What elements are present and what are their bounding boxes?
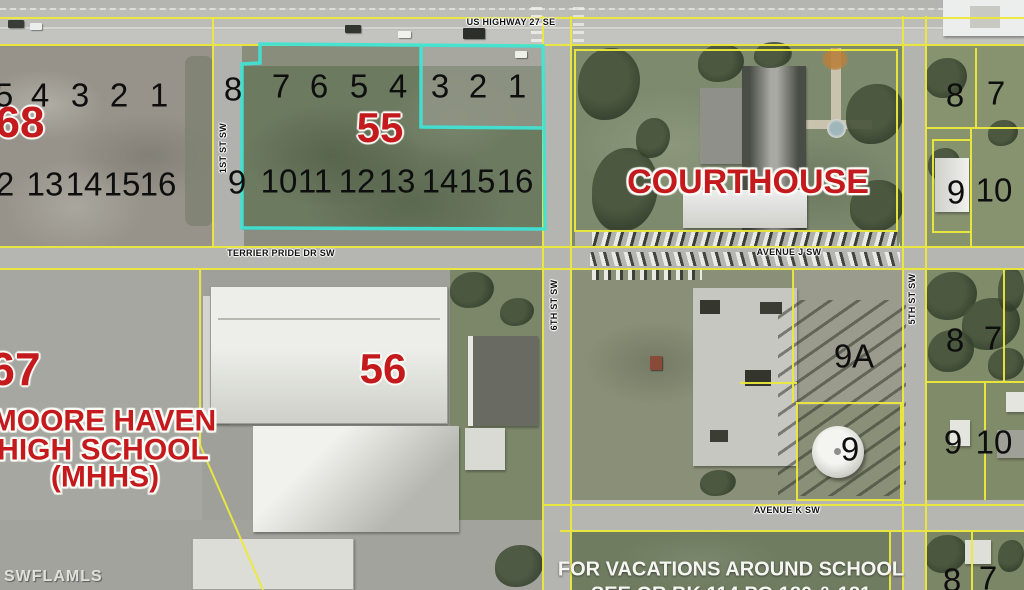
highway-lane-dashes — [0, 8, 1024, 10]
lot-number: 14 — [422, 165, 459, 198]
courthouse-label: COURTHOUSE — [627, 165, 869, 201]
parcel-55-notch-ground — [420, 46, 545, 128]
parcel-55-top-band — [242, 44, 545, 66]
antenna-structure — [650, 356, 662, 370]
tree — [988, 348, 1024, 380]
tree — [450, 272, 494, 308]
shed — [950, 420, 970, 446]
aerial-parcel-map: US HIGHWAY 27 SE TERRIER PRIDE DR SW AVE… — [0, 0, 1024, 590]
vehicle — [30, 23, 42, 30]
lot-number: 13 — [27, 168, 64, 201]
roof-patch — [700, 300, 720, 314]
lot-number: 5 — [350, 70, 368, 103]
parcel-number-label: 68 — [0, 101, 44, 145]
lot-number: 2 — [110, 79, 128, 112]
school-low-wing — [253, 426, 459, 532]
street-label-avenue-k: AVENUE K SW — [754, 505, 820, 515]
street-label-fifth-st: 5TH ST SW — [907, 274, 917, 325]
parked-cars-row — [592, 268, 702, 280]
house — [935, 158, 969, 212]
water-tower-cap — [834, 448, 841, 455]
house — [965, 540, 991, 564]
vacation-note-line2: SEE OR BK 114 PG 180 & 181 — [591, 584, 871, 590]
school-small-building — [465, 428, 505, 470]
block-68-lot — [0, 44, 213, 247]
street-label-terrier-pride: TERRIER PRIDE DR SW — [227, 248, 335, 258]
tree — [998, 540, 1024, 572]
vacation-note-line1: FOR VACATIONS AROUND SCHOOL — [558, 559, 904, 582]
lot-number: 15 — [459, 165, 496, 198]
lot-number: 8 — [224, 73, 242, 106]
lot-number: 16 — [140, 168, 177, 201]
parked-cars-row — [60, 496, 198, 511]
tree — [925, 58, 967, 98]
school-dark-building — [468, 336, 538, 426]
lot-number: 7 — [979, 562, 997, 590]
school-south-building — [192, 538, 354, 590]
school-main-building — [210, 286, 448, 424]
lot-number: 15 — [104, 168, 141, 201]
block-68-green-edge — [185, 56, 213, 226]
street-label-first-st: 1ST ST SW — [218, 123, 228, 173]
lot-number: 3 — [71, 79, 89, 112]
roof-patch — [745, 370, 771, 386]
crosswalk — [573, 2, 584, 42]
school-roof-ridge — [218, 318, 440, 320]
vehicle — [463, 28, 485, 39]
lot-number: 14 — [66, 168, 103, 201]
roof-patch — [710, 430, 728, 442]
parcel-number-label: 55 — [357, 107, 404, 149]
lot-number: 7 — [987, 77, 1005, 110]
lot-number: 9 — [228, 166, 246, 199]
lot-number: 1 — [508, 70, 526, 103]
vehicle — [398, 31, 411, 38]
tree — [500, 298, 534, 326]
lot-number: 3 — [431, 70, 449, 103]
shed — [1006, 392, 1024, 412]
tree — [998, 268, 1024, 312]
parked-cars-row — [2, 378, 150, 393]
lot-number: 16 — [497, 165, 534, 198]
vehicle — [8, 20, 24, 28]
tree — [988, 120, 1018, 146]
street-label-avenue-j: AVENUE J SW — [757, 247, 822, 257]
tree — [846, 84, 904, 144]
tree — [636, 118, 670, 158]
lot-number: 6 — [310, 70, 328, 103]
parked-cars-row — [590, 252, 900, 266]
parcel-55-grass — [242, 44, 545, 230]
lot-number: 2 — [469, 70, 487, 103]
vehicle — [515, 51, 527, 58]
vehicle — [345, 25, 361, 33]
tree — [754, 42, 792, 68]
lot-number: 4 — [389, 70, 407, 103]
tree — [928, 330, 974, 372]
lot-number: 2 — [0, 168, 14, 201]
parked-cars-row — [2, 338, 196, 353]
lot-number: 10 — [976, 174, 1013, 207]
highway-center-line — [0, 27, 1024, 29]
street-label-sixth-st: 6TH ST SW — [549, 280, 559, 331]
school-label-line3: (MHHS) — [51, 461, 159, 493]
street-label-us-highway-27: US HIGHWAY 27 SE — [467, 17, 556, 27]
house — [997, 430, 1024, 458]
lot-number: 5 — [0, 79, 13, 112]
mls-watermark: SWFLAMLS — [4, 568, 103, 586]
parked-cars-row — [592, 232, 900, 246]
tree — [700, 470, 736, 496]
tree — [495, 545, 543, 587]
lot-number: 13 — [379, 165, 416, 198]
courthouse-west-wing — [700, 88, 744, 164]
lot-number: 1 — [150, 79, 168, 112]
autumn-tree — [822, 48, 848, 70]
fountain — [827, 119, 846, 138]
parked-cars-row — [2, 296, 196, 311]
lot-number: 7 — [272, 70, 290, 103]
tree — [578, 48, 640, 120]
ne-corner-building-unit — [970, 6, 1000, 28]
lot-number: 11 — [298, 165, 332, 198]
lot-number: 10 — [261, 165, 298, 198]
lot-number: 12 — [339, 165, 376, 198]
lot-number: 4 — [31, 79, 49, 112]
tree — [698, 44, 744, 82]
school-label-line1: MOORE HAVEN — [0, 405, 216, 437]
tree — [925, 535, 967, 573]
